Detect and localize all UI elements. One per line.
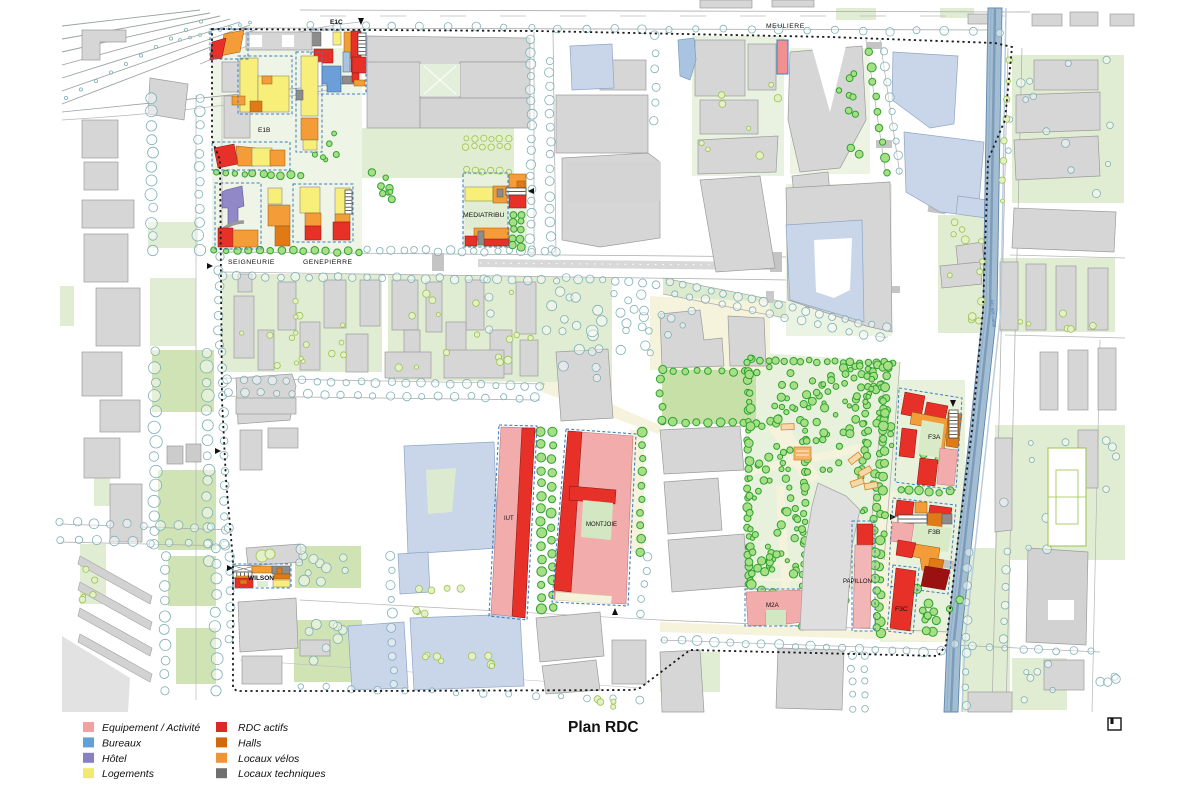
svg-text:F3C: F3C (895, 606, 908, 613)
svg-text:Bureaux: Bureaux (102, 737, 142, 749)
svg-text:F3A: F3A (928, 434, 941, 441)
svg-text:Plan RDC: Plan RDC (568, 719, 639, 736)
svg-text:SEIGNEURIE: SEIGNEURIE (228, 259, 275, 266)
svg-text:MEULIERE: MEULIERE (766, 23, 805, 30)
svg-text:Locaux vélos: Locaux vélos (238, 753, 300, 765)
svg-text:Logements: Logements (102, 768, 155, 780)
svg-text:Hôtel: Hôtel (102, 753, 127, 765)
svg-text:E1B: E1B (258, 127, 270, 134)
svg-text:Halls: Halls (238, 737, 262, 749)
svg-text:WILSON: WILSON (248, 575, 274, 582)
svg-text:PAPILLON: PAPILLON (843, 579, 872, 585)
svg-text:MONTJOIE: MONTJOIE (586, 522, 617, 528)
svg-text:M2A: M2A (766, 602, 780, 609)
svg-text:Equipement / Activité: Equipement / Activité (102, 722, 200, 734)
svg-text:Locaux techniques: Locaux techniques (238, 768, 326, 780)
svg-text:IUT: IUT (504, 516, 514, 522)
svg-text:E1C: E1C (330, 19, 343, 26)
svg-text:MEDIATRIBU: MEDIATRIBU (463, 212, 505, 219)
svg-text:GENEPIERRE: GENEPIERRE (303, 259, 353, 266)
svg-text:F3B: F3B (928, 529, 941, 536)
svg-text:RDC actifs: RDC actifs (238, 722, 289, 734)
